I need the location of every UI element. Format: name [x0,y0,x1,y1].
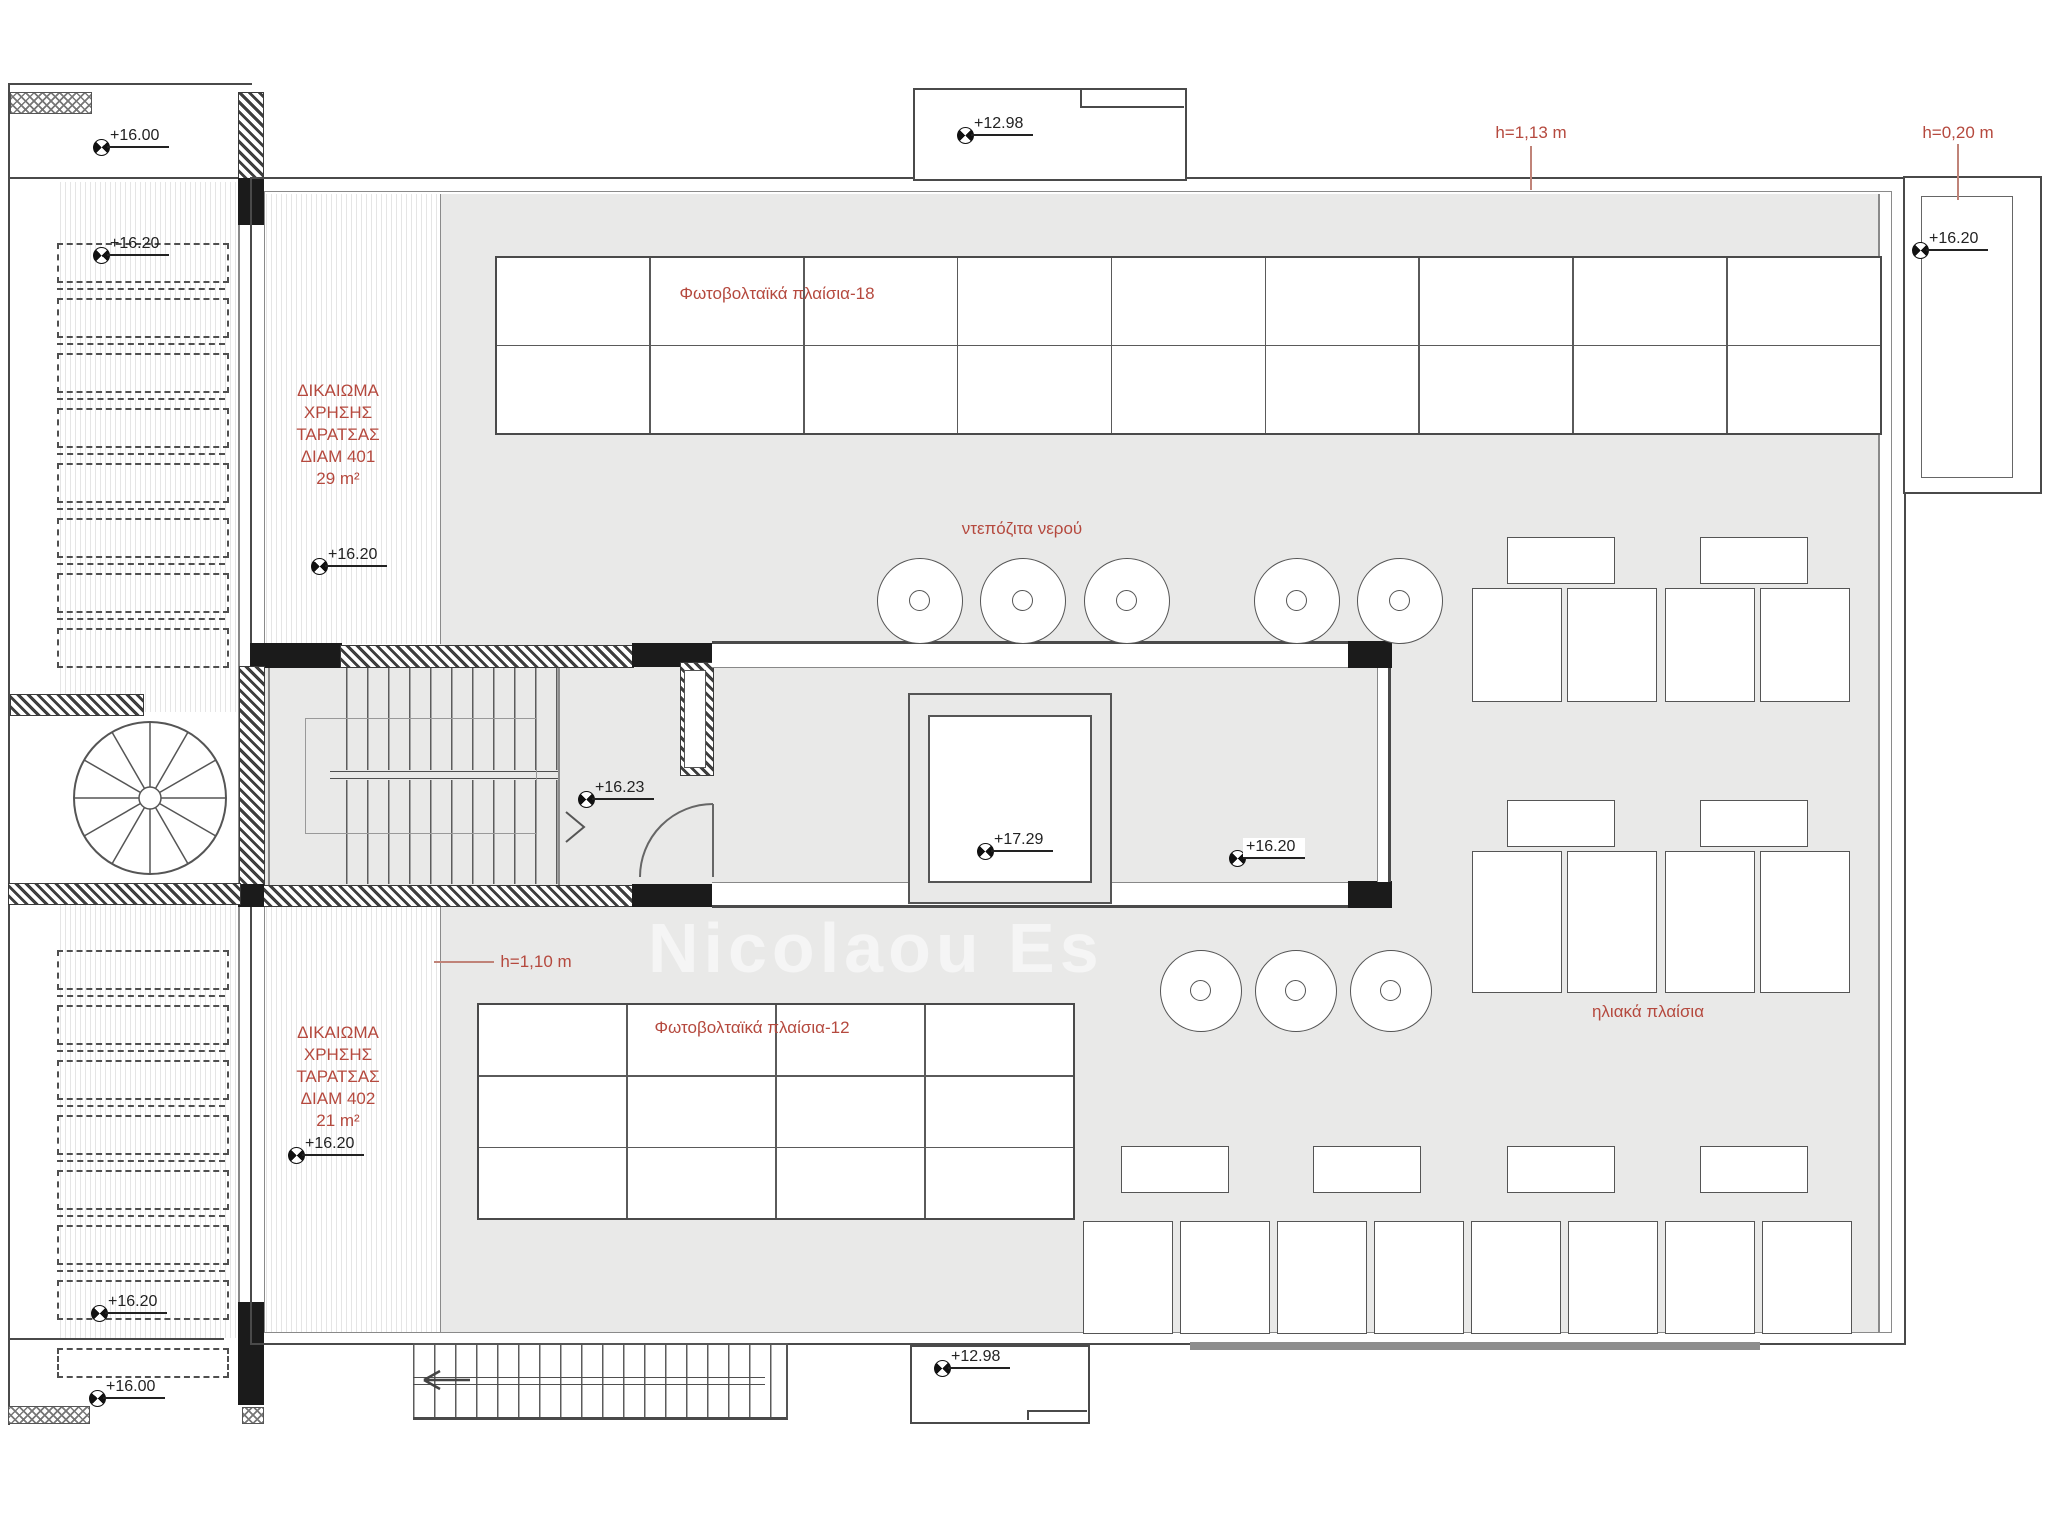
solar-heater-tank [1700,537,1808,584]
elevation-value: +16.23 [592,779,654,800]
red-annotation-label: h=1,13 m [1495,123,1566,143]
pergola-dashed-line [57,343,225,345]
solar-panel [1762,1221,1852,1334]
pv-panel-cell [1574,346,1726,433]
leader-line [1957,144,1959,200]
solar-heater-tank [1507,800,1615,847]
water-tank-cap [1012,590,1033,611]
solar-panel [1568,1221,1658,1334]
pv-panel-cell [479,1005,626,1075]
solar-heater-tank [1313,1146,1421,1193]
water-tank [1350,950,1432,1032]
pv-panel-cell [1728,258,1880,345]
elevation-value: +12.98 [971,115,1033,136]
pv-panel-cell [777,1148,924,1218]
solar-heater-tank [1507,1146,1615,1193]
red-annotation-label: Φωτοβολταϊκά πλαίσια-12 [654,1018,849,1038]
pergola-dashed-line [57,995,225,997]
pv-panel-cell [479,1148,626,1218]
pv-panel-cell [1728,346,1880,433]
solar-heater-tank [1121,1146,1229,1193]
solar-panel [1665,588,1755,702]
pergola-dashed-beam [57,573,229,613]
pv-panel-cell [628,1148,775,1218]
elevation-value: +16.20 [1243,838,1305,859]
leader-line [434,961,494,963]
elevation-value: +17.29 [991,831,1053,852]
solar-panel [1567,851,1657,993]
exterior-stair-arrow [424,1371,470,1389]
pergola-dashed-line [57,1215,225,1217]
solar-heater-tank [1700,1146,1808,1193]
pv-panel-cell [497,258,649,345]
water-tank [1160,950,1242,1032]
water-tank-cap [1286,590,1307,611]
pv-panel-cell [1112,346,1264,433]
elevation-value: +16.20 [107,235,169,256]
solar-panel [1471,1221,1561,1334]
pergola-dashed-line [57,288,225,290]
pv-panel-cell [1266,258,1418,345]
pergola-dashed-beam [57,298,229,338]
pergola-dashed-beam [57,408,229,448]
pv-panel-cell [1420,346,1572,433]
pergola-dashed-beam [57,1348,229,1378]
elevation-value: +16.20 [1926,230,1988,251]
water-tank [1254,558,1340,644]
pergola-dashed-beam [57,1005,229,1045]
water-tank [1357,558,1443,644]
elevation-value: +16.20 [105,1293,167,1314]
pergola-dashed-line [57,1050,225,1052]
pv-panel-cell [628,1005,775,1075]
water-tank-cap [1380,980,1401,1001]
solar-panel [1083,1221,1173,1334]
water-tank-cap [1116,590,1137,611]
pergola-dashed-beam [57,628,229,668]
pv-panel-cell [651,346,803,433]
pergola-dashed-beam [57,1225,229,1265]
water-tank-cap [909,590,930,611]
leader-line [1530,146,1532,190]
pv-panel-cell [1112,258,1264,345]
pergola-dashed-line [57,453,225,455]
pv-panel-cell [958,258,1110,345]
elevation-value: +16.20 [325,546,387,567]
pv-panel-cell [926,1148,1073,1218]
pv-panel-cell [479,1077,626,1147]
pv-panel-cell [1266,346,1418,433]
solar-panel [1567,588,1657,702]
elevation-value: +16.00 [107,127,169,148]
pv-panel-cell [1420,258,1572,345]
pergola-dashed-line [57,1160,225,1162]
pergola-dashed-beam [57,1170,229,1210]
red-annotation-label: h=0,20 m [1922,123,1993,143]
pv-panel-cell [926,1005,1073,1075]
pergola-dashed-line [57,398,225,400]
solar-panel [1277,1221,1367,1334]
water-tank [980,558,1066,644]
pv-panel-cell [926,1077,1073,1147]
elevation-value: +16.20 [302,1135,364,1156]
solar-panel [1760,588,1850,702]
water-tank-cap [1389,590,1410,611]
solar-panel [1665,851,1755,993]
solar-panel [1472,851,1562,993]
red-annotation-label: ηλιακά πλαίσια [1592,1002,1704,1022]
pergola-dashed-line [57,563,225,565]
pergola-dashed-line [57,1105,225,1107]
roof-floor-plan: Nicolaou Es ΔΙΚΑΙΩΜΑ ΧΡΗΣΗΣ ΤΑΡΑΤΣΑΣ ΔΙΑ… [0,0,2048,1536]
pv-panel-cell [777,1077,924,1147]
pergola-dashed-beam [57,518,229,558]
pv-panel-cell [958,346,1110,433]
pv-panel-cell [628,1077,775,1147]
pv-panel-cell [805,346,957,433]
water-tank-cap [1190,980,1211,1001]
photovoltaic-array-18 [495,256,1882,435]
stair-direction-chevron [566,812,584,842]
pergola-dashed-beam [57,353,229,393]
solar-panel [1374,1221,1464,1334]
water-tank [1084,558,1170,644]
red-annotation-label: ντεπόζιτα νερού [962,519,1082,539]
pv-panel-cell [497,346,649,433]
elevation-value: +12.98 [948,1348,1010,1369]
solar-panel [1665,1221,1755,1334]
pergola-dashed-line [57,508,225,510]
solar-panel [1472,588,1562,702]
pergola-dashed-beam [57,1060,229,1100]
solar-heater-tank [1700,800,1808,847]
pergola-dashed-line [57,618,225,620]
water-tank [1255,950,1337,1032]
pergola-dashed-beam [57,463,229,503]
solar-panel [1180,1221,1270,1334]
elevation-value: +16.00 [103,1378,165,1399]
pv-panel-cell [777,1005,924,1075]
solar-heater-tank [1507,537,1615,584]
spiral-stair-part [139,787,161,809]
water-tank [877,558,963,644]
red-annotation-label: h=1,10 m [500,952,571,972]
pv-panel-cell [1574,258,1726,345]
pergola-dashed-line [57,1270,225,1272]
solar-panel [1760,851,1850,993]
pergola-dashed-beam [57,950,229,990]
door-swing-arc [640,804,713,877]
pergola-dashed-beam [57,1115,229,1155]
red-annotation-label: Φωτοβολταϊκά πλαίσια-18 [679,284,874,304]
water-tank-cap [1285,980,1306,1001]
